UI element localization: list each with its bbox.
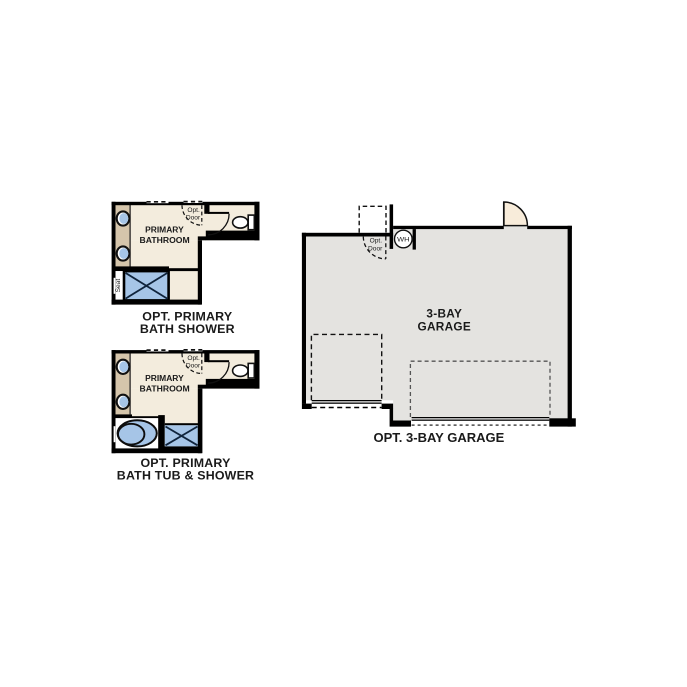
svg-text:Seat: Seat <box>115 279 122 293</box>
svg-text:BATHROOM: BATHROOM <box>140 383 190 393</box>
svg-text:GARAGE: GARAGE <box>418 320 472 334</box>
svg-text:Opt.: Opt. <box>187 355 200 362</box>
svg-text:PRIMARY: PRIMARY <box>145 225 184 235</box>
svg-text:Opt.: Opt. <box>187 207 200 214</box>
svg-text:BATH TUB & SHOWER: BATH TUB & SHOWER <box>117 469 254 483</box>
svg-text:OPT. 3-BAY GARAGE: OPT. 3-BAY GARAGE <box>374 430 505 445</box>
svg-text:Door: Door <box>186 363 201 370</box>
svg-text:BATHROOM: BATHROOM <box>140 235 190 245</box>
svg-text:Door: Door <box>186 214 201 221</box>
svg-text:WH: WH <box>397 236 409 243</box>
svg-text:BATH SHOWER: BATH SHOWER <box>140 322 235 336</box>
svg-text:PRIMARY: PRIMARY <box>145 373 184 383</box>
svg-text:Door: Door <box>368 246 383 253</box>
svg-text:Opt.: Opt. <box>370 238 383 245</box>
